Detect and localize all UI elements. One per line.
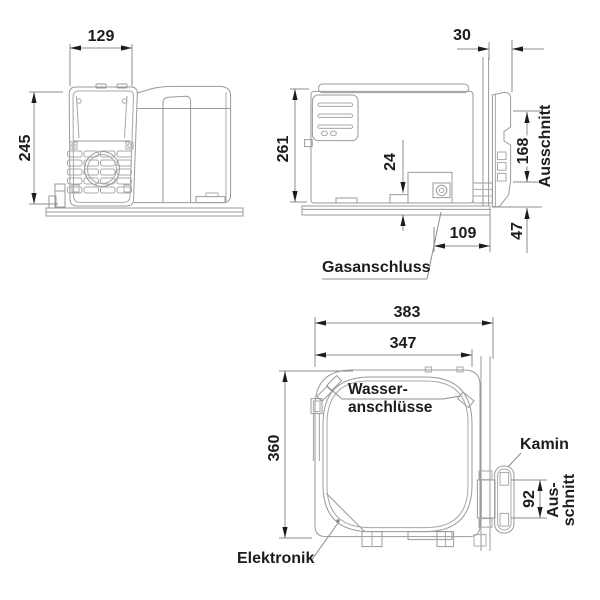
dim-label-cutout-width: 92 xyxy=(521,490,539,508)
dim-label-depth: 360 xyxy=(266,435,284,462)
dim-label-gas-offset: 109 xyxy=(450,225,477,243)
water-label-line1: Wasser- xyxy=(348,381,432,399)
electronics-label: Elektronik xyxy=(237,550,314,568)
dim-label-front-height: 245 xyxy=(17,135,35,162)
side-view-geometry xyxy=(302,57,511,215)
cutout-label-top: Aus- schnitt xyxy=(546,474,578,526)
electronics-marker-dot xyxy=(336,519,339,522)
dim-label-wall-thickness: 30 xyxy=(453,27,471,45)
cutout-label-line1: Aus- xyxy=(546,474,562,526)
dim-label-base-clearance: 24 xyxy=(382,153,400,171)
technical-drawing-canvas: 129 245 30 261 24 168 Ausschnitt 47 109 … xyxy=(0,0,600,600)
dim-label-cutout-height: 168 xyxy=(515,136,533,167)
chimney-label: Kamin xyxy=(520,436,569,454)
cutout-label-side: Ausschnitt xyxy=(537,105,555,188)
cutout-label-line2: schnitt xyxy=(562,474,578,526)
dim-label-side-height: 261 xyxy=(275,136,293,163)
dim-label-overall-width: 383 xyxy=(394,304,421,322)
water-connections-label: Wasser- anschlüsse xyxy=(348,381,432,417)
front-view-geometry xyxy=(46,84,243,216)
dim-label-body-width: 347 xyxy=(390,335,417,353)
drawing-linework xyxy=(0,0,600,600)
dim-label-below-cutout: 47 xyxy=(509,222,527,240)
gas-connection-label: Gasanschluss xyxy=(322,259,431,277)
dim-label-front-width: 129 xyxy=(88,28,115,46)
water-label-line2: anschlüsse xyxy=(348,399,432,417)
